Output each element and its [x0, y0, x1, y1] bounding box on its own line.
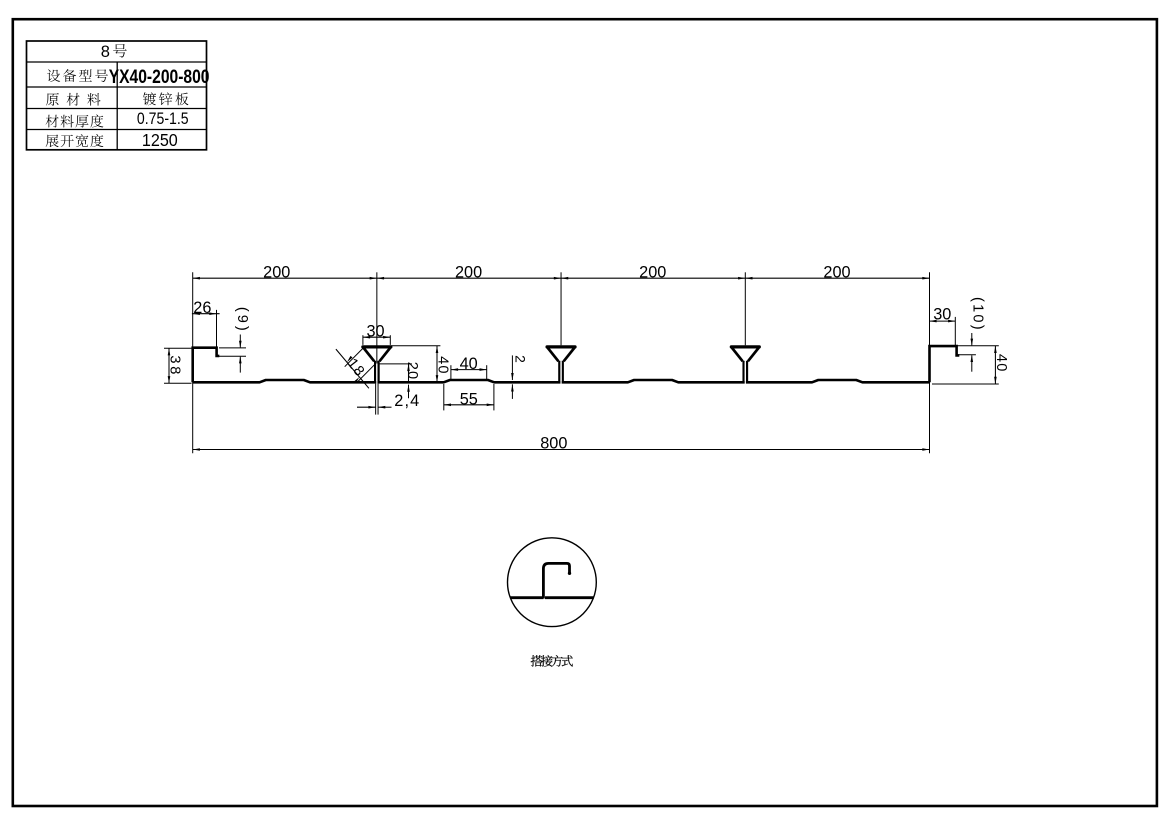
svg-text:YX40-200-800: YX40-200-800	[109, 65, 210, 87]
svg-text:55: 55	[460, 390, 478, 408]
svg-text:(9): (9)	[234, 307, 250, 334]
svg-text:30: 30	[366, 322, 384, 340]
svg-text:200: 200	[823, 263, 850, 281]
svg-text:40: 40	[434, 356, 450, 375]
svg-text:200: 200	[263, 263, 290, 281]
svg-text:8: 8	[101, 43, 110, 61]
svg-text:40: 40	[460, 355, 478, 373]
svg-text:200: 200	[639, 263, 666, 281]
svg-text:2,4: 2,4	[394, 392, 420, 410]
svg-text:2: 2	[513, 355, 528, 364]
svg-text:40: 40	[993, 354, 1009, 373]
svg-text:38: 38	[167, 355, 183, 377]
svg-text:0.75-1.5: 0.75-1.5	[137, 110, 189, 129]
svg-text:1250: 1250	[142, 130, 178, 150]
svg-text:(10): (10)	[969, 297, 985, 332]
svg-text:26: 26	[193, 299, 211, 317]
svg-text:20: 20	[404, 362, 420, 381]
svg-text:30: 30	[933, 305, 951, 323]
svg-text:200: 200	[455, 263, 482, 281]
svg-text:800: 800	[540, 435, 567, 453]
